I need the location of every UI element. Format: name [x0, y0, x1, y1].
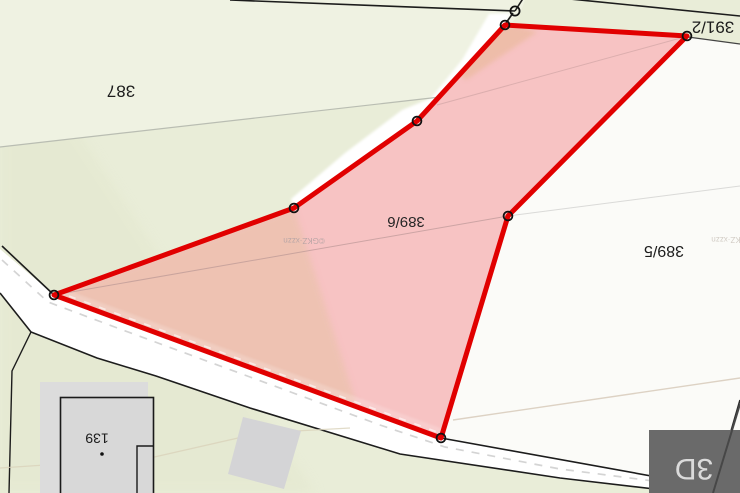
svg-text:©GKZ·xzzn: ©GKZ·xzzn [711, 235, 740, 244]
svg-text:©GKZ·xzzn: ©GKZ·xzzn [283, 236, 324, 245]
svg-text:391/2: 391/2 [692, 18, 735, 37]
svg-text:3D: 3D [675, 452, 713, 485]
svg-text:389/6: 389/6 [387, 213, 425, 230]
svg-text:387: 387 [107, 82, 135, 101]
svg-text:389/5: 389/5 [644, 242, 684, 259]
svg-text:139: 139 [85, 430, 109, 446]
